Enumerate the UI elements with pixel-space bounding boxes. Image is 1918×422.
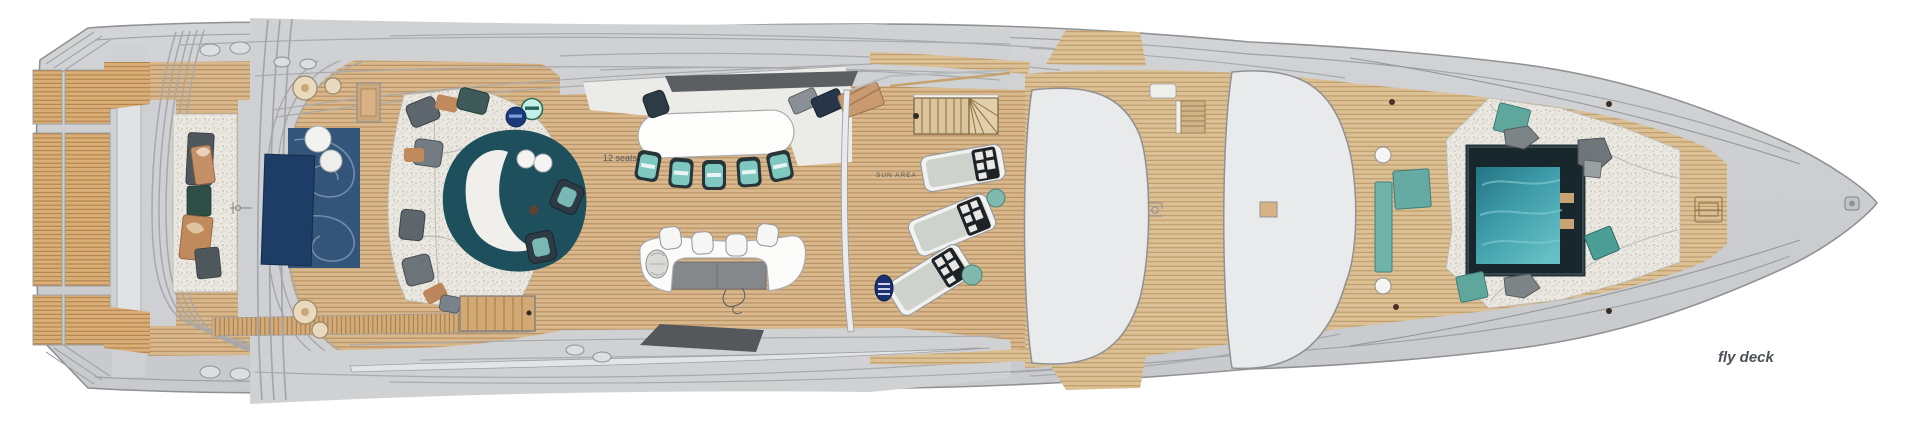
svg-text:12 seats: 12 seats: [603, 153, 638, 163]
svg-text:fly deck: fly deck: [1718, 349, 1775, 366]
svg-text:SUN AREA: SUN AREA: [876, 172, 917, 179]
